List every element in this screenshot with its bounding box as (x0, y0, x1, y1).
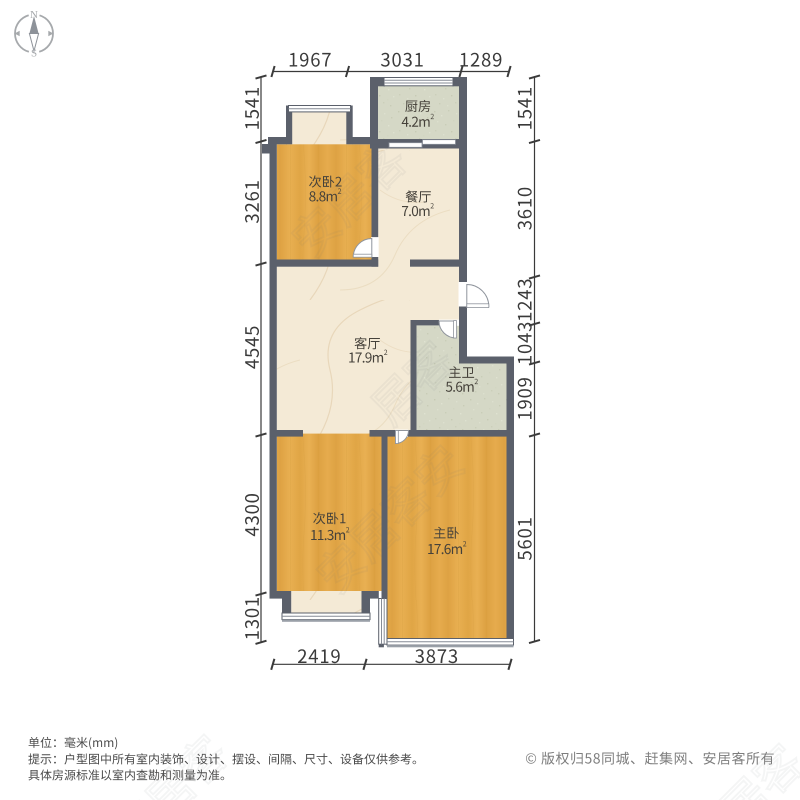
svg-text:N: N (30, 9, 38, 21)
svg-text:S: S (31, 48, 37, 60)
